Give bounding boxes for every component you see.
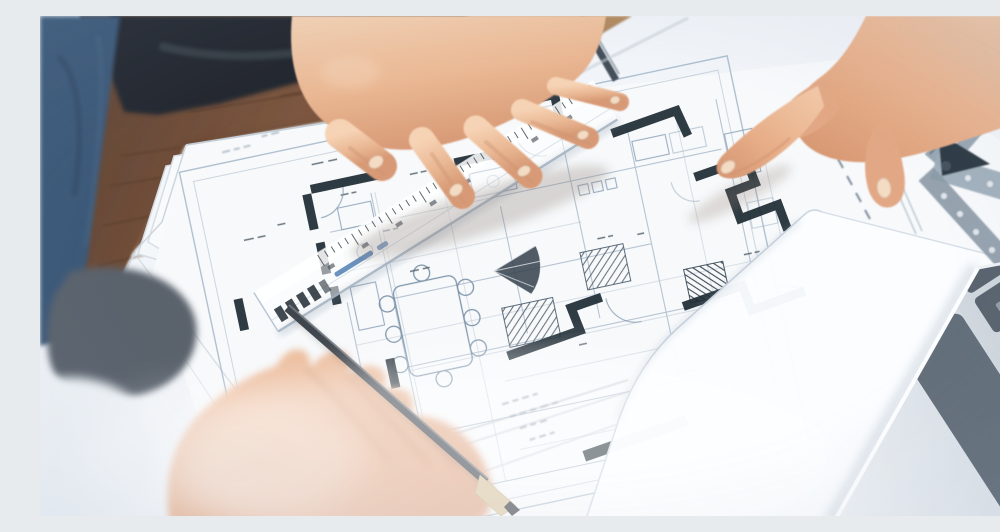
architect-desk-photo: Close-up photo of two people reviewing a…: [40, 16, 1000, 516]
lighting: [40, 16, 1000, 516]
